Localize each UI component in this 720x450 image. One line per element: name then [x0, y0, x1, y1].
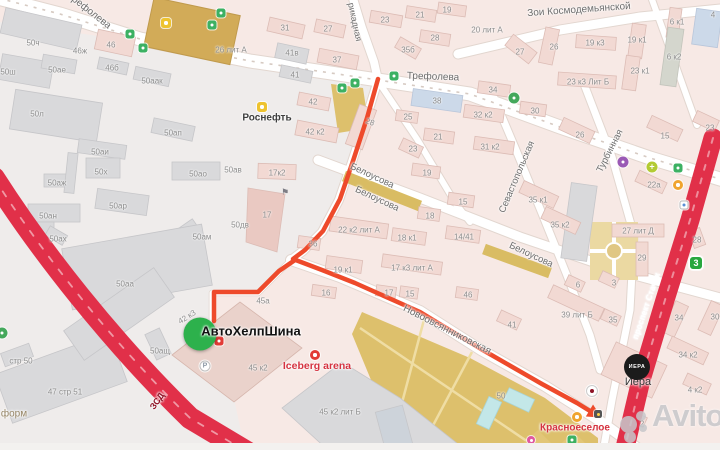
iceberg-arena-icon[interactable]	[310, 350, 320, 360]
avito-watermark[interactable]: Avito	[610, 398, 720, 434]
fuel-station-icon[interactable]	[257, 102, 267, 112]
transit-stop-icon[interactable]	[217, 9, 226, 18]
fuel-station-icon[interactable]	[161, 18, 171, 28]
transit-stop-white-icon[interactable]	[680, 201, 689, 210]
transit-stop-icon[interactable]	[208, 21, 217, 30]
map-canvas[interactable]: ТрефолеваТрефолеварикаднаяЗои Космодемья…	[0, 0, 720, 450]
transit-stop-icon[interactable]	[674, 164, 683, 173]
pharmacy-cross-icon[interactable]: +	[647, 162, 658, 173]
avito-logo-circle	[639, 424, 647, 432]
park-icon[interactable]	[509, 93, 520, 104]
transit-stop-icon[interactable]	[139, 44, 148, 53]
parking-icon[interactable]: P	[200, 361, 211, 372]
transit-stop-icon[interactable]	[338, 84, 347, 93]
crossing-icon[interactable]	[586, 385, 598, 397]
flag-icon[interactable]: ⚑	[280, 187, 290, 197]
avito-logo-circle	[620, 416, 637, 433]
ivera-logo[interactable]: ИЕРА	[624, 354, 650, 380]
map-base-layer	[0, 0, 720, 450]
shopping-cart-icon[interactable]	[673, 180, 683, 190]
shopping-cart-icon[interactable]	[572, 412, 582, 422]
transit-stop-icon[interactable]	[351, 79, 360, 88]
tram-route-3-badge[interactable]: 3	[689, 256, 703, 270]
bottom-bar	[0, 443, 720, 450]
transit-stop-icon[interactable]	[126, 30, 135, 39]
avito-logo-circle	[636, 411, 646, 421]
traffic-light-icon[interactable]	[594, 410, 602, 418]
avito-watermark-text: Avito	[652, 398, 720, 434]
theater-icon[interactable]	[618, 157, 629, 168]
autohelpshina-label: АвтоХелпШина	[201, 324, 301, 339]
transit-stop-icon[interactable]	[390, 72, 399, 81]
